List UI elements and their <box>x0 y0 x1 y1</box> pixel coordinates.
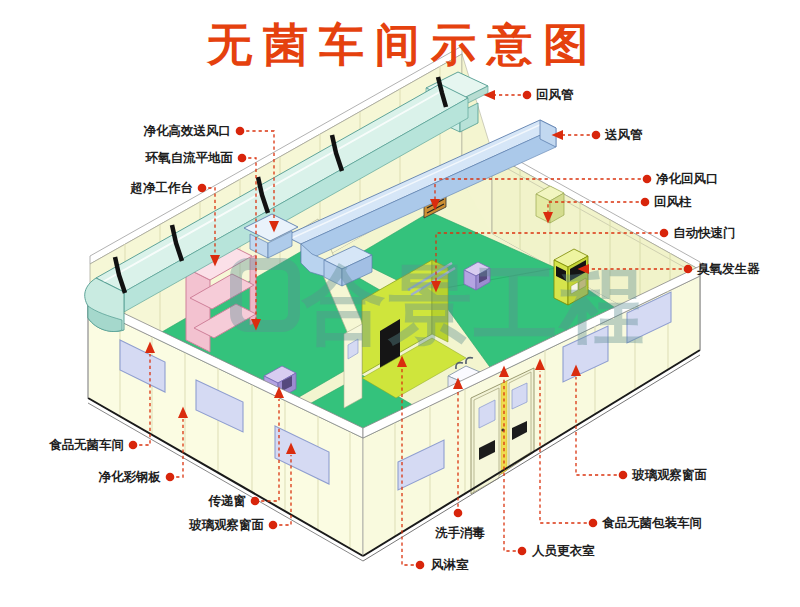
dot-glass-window-right <box>619 471 628 480</box>
dot-changing-room <box>518 547 527 556</box>
label-return-air-column: 回风柱 <box>654 194 692 209</box>
cleanroom-diagram: 合景工程 <box>0 0 800 607</box>
dot-glass-window-left <box>269 521 278 530</box>
dot-packing-workshop <box>589 519 598 528</box>
label-food-sterile-workshop: 食品无菌车间 <box>48 437 124 452</box>
dot-ozone <box>684 265 693 274</box>
label-glass-observation-window-left: 玻璃观察窗面 <box>188 517 265 532</box>
dot-supply-duct <box>592 131 601 140</box>
dot-return-duct <box>523 91 532 100</box>
dot-return-column <box>641 198 650 207</box>
label-pass-through-window: 传递窗 <box>208 493 247 508</box>
dot-pass-window <box>251 497 260 506</box>
label-ozone-generator: 臭氧发生器 <box>696 261 760 276</box>
label-purification-return-air-outlet: 净化回风口 <box>656 171 719 186</box>
label-air-shower-room: 风淋室 <box>430 557 469 572</box>
label-return-air-duct: 回风管 <box>536 87 574 102</box>
label-staff-changing-room: 人员更衣室 <box>531 543 595 558</box>
label-automatic-rapid-door: 自动快速门 <box>673 225 736 240</box>
dot-epoxy-floor <box>238 154 247 163</box>
dot-food-workshop <box>129 441 138 450</box>
dot-air-shower <box>416 561 425 570</box>
label-glass-observation-window-right: 玻璃观察窗面 <box>631 467 708 482</box>
label-epoxy-self-leveling-floor: 环氧自流平地面 <box>145 150 234 165</box>
dot-hepa-outlet <box>236 127 245 136</box>
label-ultra-clean-workbench: 超净工作台 <box>130 180 194 195</box>
cleanroom-schematic-page: 合景工程 <box>0 0 800 607</box>
label-hand-wash-disinfection: 洗手消毒 <box>434 525 486 540</box>
dot-return-outlet <box>643 175 652 184</box>
label-hepa-supply-air-outlet: 净化高效送风口 <box>144 123 232 138</box>
dot-workbench <box>198 184 207 193</box>
watermark-text: 合景工程 <box>300 256 646 354</box>
label-purification-color-steel-panel: 净化彩钢板 <box>99 469 162 484</box>
dot-steel-panel <box>166 473 175 482</box>
dot-rapid-door <box>660 229 669 238</box>
dot-hand-wash <box>454 509 463 518</box>
page-title: 无菌车间示意图 <box>206 18 599 71</box>
label-food-sterile-packing-workshop: 食品无菌包装车间 <box>601 515 702 530</box>
label-supply-air-duct: 送风管 <box>604 127 643 142</box>
workbench-left-panel <box>186 268 210 352</box>
